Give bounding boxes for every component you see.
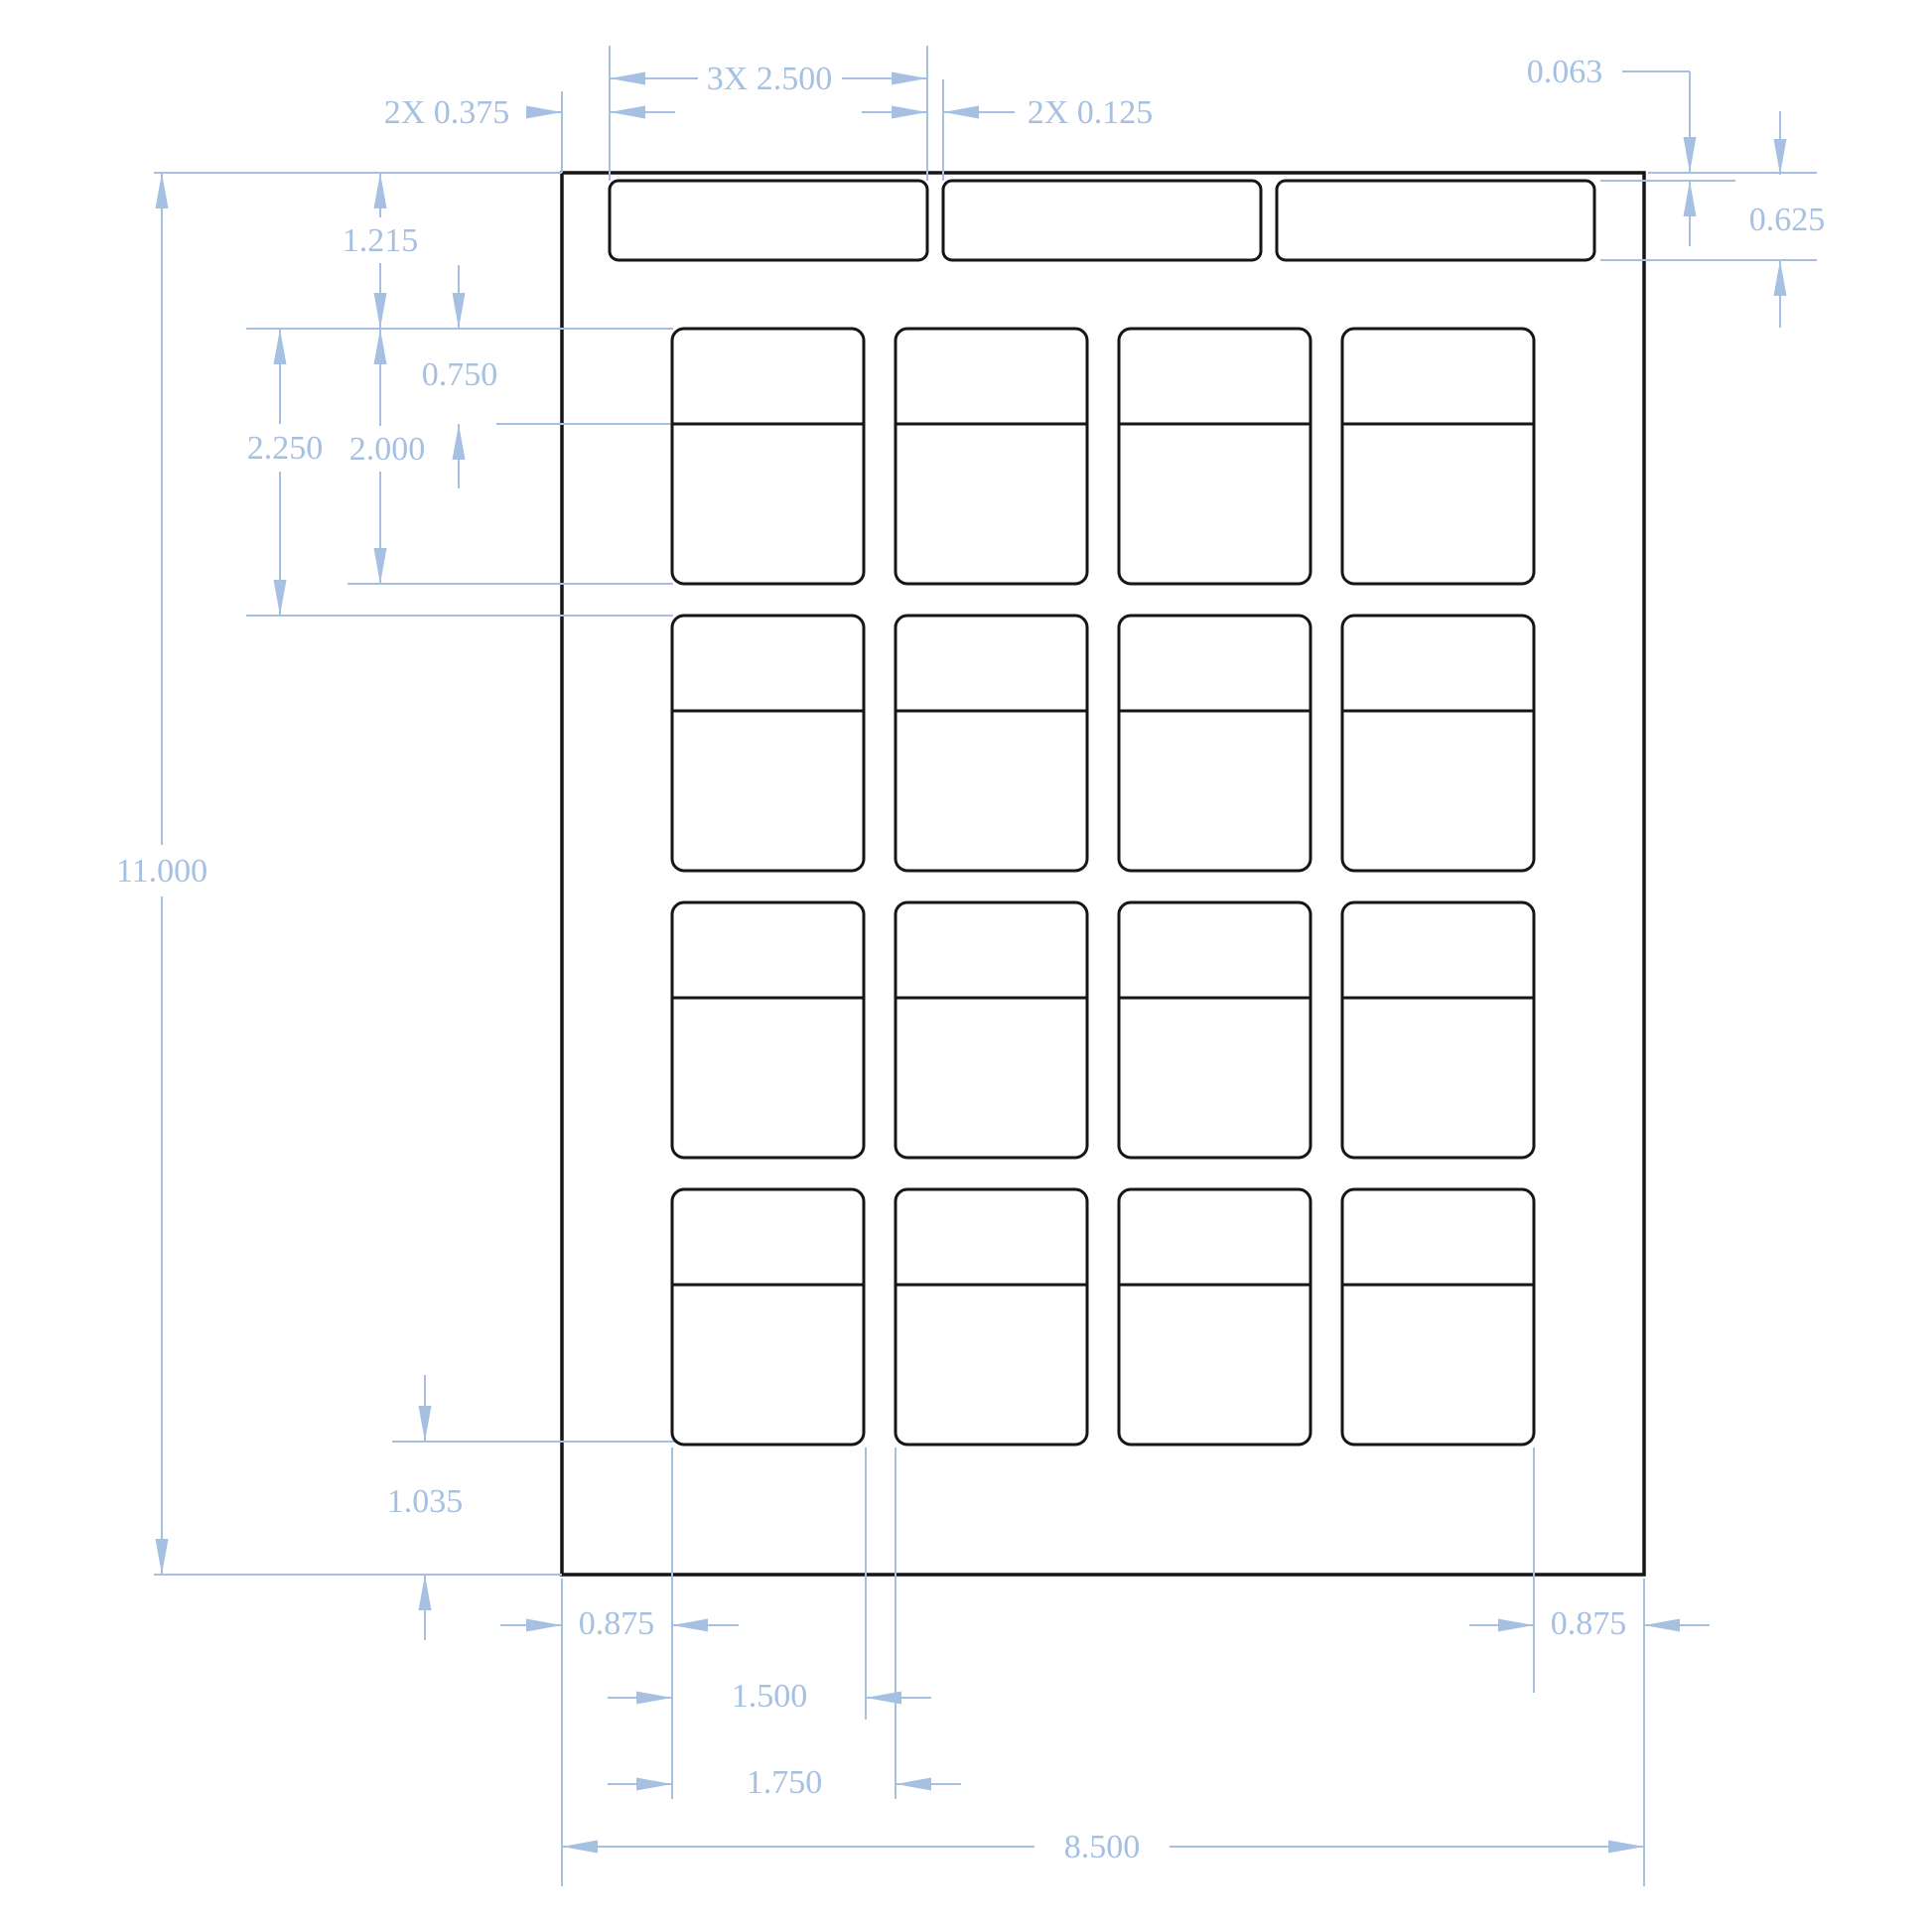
dim-label-left-margin: 0.875	[579, 1605, 655, 1642]
dim-left-margin: 0.875	[500, 1605, 739, 1642]
arrow-head	[892, 72, 927, 85]
dim-strip-gap: 2X 0.125	[862, 94, 1153, 131]
arrow-head	[453, 293, 466, 329]
dim-label-sheet-height: 11.000	[116, 853, 207, 890]
dim-label-right-margin: 0.875	[1551, 1605, 1627, 1642]
arrow-head	[1684, 137, 1697, 173]
technical-drawing-canvas: 3X 2.500 2X 0.375 2X 0.125 0.063 0.625	[0, 0, 1932, 1932]
label-r4-c4	[1342, 1189, 1534, 1445]
arrow-head	[374, 293, 387, 329]
dim-strip-width: 3X 2.500	[610, 61, 927, 97]
header-strip-3	[1277, 181, 1594, 260]
header-strips	[610, 181, 1594, 260]
arrow-head	[274, 580, 287, 616]
dim-column-pitch: 1.750	[608, 1764, 961, 1801]
arrow-head	[610, 72, 645, 85]
arrow-head	[943, 106, 979, 119]
arrow-head	[156, 1539, 169, 1575]
label-r3-c1	[672, 902, 864, 1158]
arrow-head	[419, 1406, 432, 1442]
dim-label-strip-width: 3X 2.500	[707, 61, 833, 97]
dim-label-strip-top-offset: 0.063	[1527, 54, 1603, 90]
dim-sheet-height: 11.000	[116, 173, 207, 1575]
dim-label-sheet-width: 8.500	[1064, 1829, 1141, 1865]
dim-sheet-width: 8.500	[562, 1829, 1644, 1865]
arrow-head	[1644, 1619, 1680, 1632]
dim-label-row-pitch: 2.250	[247, 430, 324, 467]
label-r2-c3	[1119, 616, 1311, 871]
label-r2-c2	[896, 616, 1087, 871]
dim-label-width: 1.500	[608, 1678, 931, 1715]
dim-label-height: 2.000	[349, 329, 426, 584]
label-r3-c4	[1342, 902, 1534, 1158]
dim-label-strip-height: 0.625	[1749, 202, 1826, 238]
label-r1-c2	[896, 329, 1087, 584]
label-r4-c1	[672, 1189, 864, 1445]
arrow-head	[374, 548, 387, 584]
dim-label-strip-gap: 2X 0.125	[1028, 94, 1154, 131]
arrow-head	[1774, 260, 1787, 296]
arrow-head	[156, 173, 169, 208]
label-r2-c4	[1342, 616, 1534, 871]
arrow-head	[896, 1778, 931, 1791]
arrow-head	[636, 1778, 672, 1791]
label-r4-c2	[896, 1189, 1087, 1445]
label-r3-c3	[1119, 902, 1311, 1158]
label-r4-c3	[1119, 1189, 1311, 1445]
header-strip-2	[943, 181, 1261, 260]
dim-label-label-height: 2.000	[349, 431, 426, 468]
arrow-head	[672, 1619, 708, 1632]
arrow-head	[562, 1841, 598, 1854]
header-strip-1	[610, 181, 927, 260]
label-r1-c4	[1342, 329, 1534, 584]
arrow-head	[453, 424, 466, 460]
dim-top-margin: 1.215	[343, 173, 419, 329]
arrow-head	[866, 1692, 901, 1705]
technical-drawing-page: 3X 2.500 2X 0.375 2X 0.125 0.063 0.625	[0, 0, 1932, 1932]
arrow-head	[374, 329, 387, 364]
label-r1-c1	[672, 329, 864, 584]
arrow-head	[374, 173, 387, 208]
arrow-head	[526, 106, 562, 119]
dim-bottom-margin: 1.035	[387, 1375, 464, 1640]
arrow-head	[610, 106, 645, 119]
arrow-head	[1774, 139, 1787, 175]
arrow-head	[419, 1575, 432, 1610]
dim-right-margin: 0.875	[1469, 1605, 1710, 1642]
dim-strip-height: 0.625	[1749, 111, 1826, 328]
arrow-head	[892, 106, 927, 119]
label-r3-c2	[896, 902, 1087, 1158]
dim-label-strip-side-margin: 2X 0.375	[384, 94, 510, 131]
arrow-head	[1608, 1841, 1644, 1854]
label-r1-c3	[1119, 329, 1311, 584]
dim-row-pitch: 2.250	[247, 329, 324, 616]
label-r2-c1	[672, 616, 864, 871]
dim-label-label-width: 1.500	[732, 1678, 808, 1715]
arrow-head	[1684, 181, 1697, 216]
arrow-head	[636, 1692, 672, 1705]
arrow-head	[1498, 1619, 1534, 1632]
dim-label-top-margin: 1.215	[343, 222, 419, 259]
arrow-head	[526, 1619, 562, 1632]
arrow-head	[274, 329, 287, 364]
dim-strip-side-margin: 2X 0.375	[384, 94, 675, 131]
dim-label-column-pitch: 1.750	[747, 1764, 823, 1801]
dim-label-header-height: 0.750	[422, 356, 498, 393]
dim-label-bottom-margin: 1.035	[387, 1483, 464, 1520]
dim-label-header-height: 0.750	[422, 265, 498, 488]
